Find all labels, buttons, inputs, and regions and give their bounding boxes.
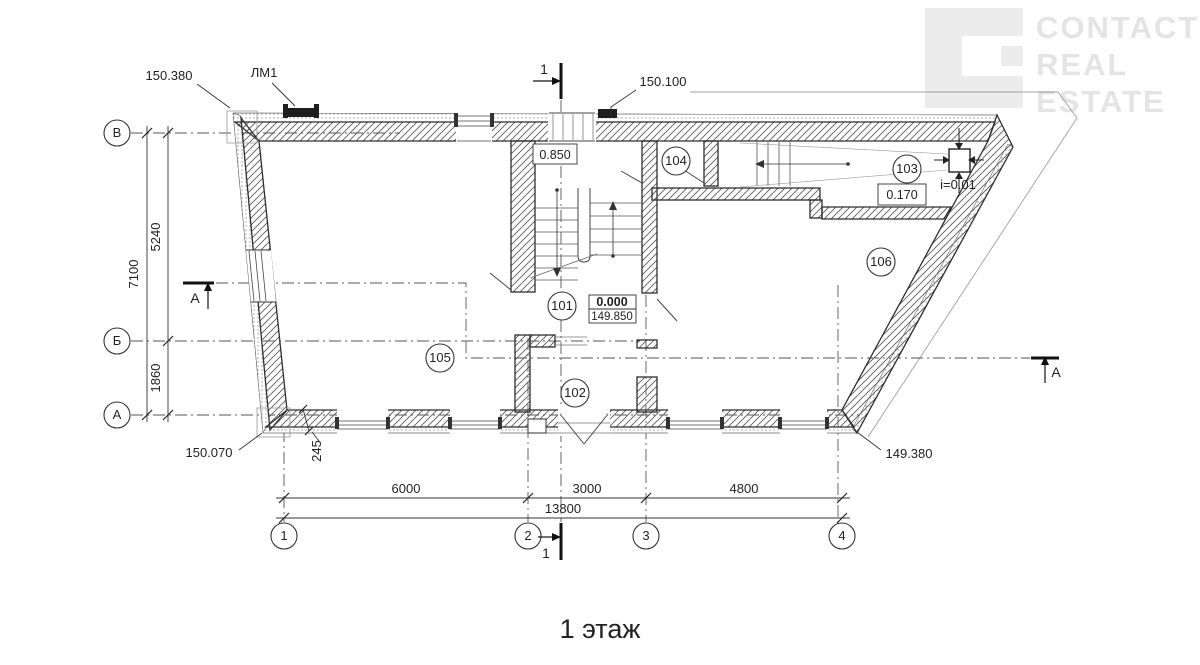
svg-text:105: 105	[429, 350, 451, 365]
dim-wall-thickness: 245	[309, 440, 324, 462]
svg-text:104: 104	[665, 153, 687, 168]
dim-b1: 6000	[392, 481, 421, 496]
stair-break-line	[530, 254, 597, 278]
room-bubble-101: 101	[548, 292, 576, 320]
wall-vestibule-left	[515, 335, 530, 412]
dim-v2: 1860	[148, 364, 163, 393]
watermark: CONTACT REAL ESTATE	[925, 8, 1199, 119]
floor-plan-svg: CONTACT REAL ESTATE	[0, 0, 1200, 665]
entry-jamb-box	[528, 419, 546, 433]
wall-stair-left	[511, 141, 535, 292]
watermark-line-1: CONTACT	[1036, 10, 1199, 45]
dim-total-bottom: 13800	[545, 501, 581, 516]
dim-v1: 5240	[148, 223, 163, 252]
axis-row-b: Б	[113, 333, 122, 348]
window-left	[246, 250, 276, 302]
drawing-sheet: CONTACT REAL ESTATE	[0, 0, 1200, 665]
wall-top-left	[235, 122, 457, 141]
corridor-arrow	[755, 160, 764, 168]
window-stairwell	[548, 112, 596, 142]
dim-b2: 3000	[573, 481, 602, 496]
roof-bracket	[598, 109, 617, 118]
axis-col-3: 3	[642, 528, 649, 543]
dim-b3: 4800	[730, 481, 759, 496]
ladder-bracket-lm1	[283, 104, 319, 118]
ladder-label: ЛМ1	[251, 65, 278, 80]
section-1-bottom: 1	[538, 523, 561, 561]
wall-vestibule-right-a	[637, 340, 657, 348]
elev-bottom-right: 149.380	[886, 446, 933, 461]
window-bottom-3	[666, 407, 724, 434]
wall-room104-right	[704, 141, 718, 186]
svg-text:1: 1	[540, 61, 548, 77]
svg-text:А: А	[190, 290, 200, 306]
axis-col-2: 2	[524, 528, 531, 543]
window-bottom-2	[448, 407, 502, 434]
wall-vestibule-right-b	[637, 377, 657, 412]
axis-col-1: 1	[280, 528, 287, 543]
room-bubble-102: 102	[561, 379, 589, 407]
wall-stair-right	[642, 141, 657, 293]
wall-corridor-south	[652, 188, 820, 200]
wall-corridor-south-east	[822, 207, 951, 219]
entrance-door	[558, 405, 610, 444]
section-1-top: 1	[533, 61, 561, 99]
axis-row-a: А	[113, 407, 122, 422]
svg-text:1: 1	[542, 545, 550, 561]
wall-corridor-step	[810, 200, 822, 218]
watermark-line-2: REAL	[1036, 47, 1128, 82]
level-boxes: 0.850 0.000 149.850 0.170	[533, 144, 926, 323]
stair-down-arrow	[553, 188, 561, 277]
section-a-left: А	[183, 282, 214, 309]
svg-text:103: 103	[896, 161, 918, 176]
stair-handrail	[578, 188, 590, 262]
window-bottom-4	[778, 407, 829, 434]
room-bubble-105: 105	[426, 344, 454, 372]
wall-right-slant	[842, 115, 1013, 433]
svg-text:А: А	[1051, 364, 1061, 380]
main-staircase	[530, 188, 642, 280]
slope-label: i=0.01	[940, 177, 976, 192]
wall-vestibule-stub	[530, 335, 555, 347]
elev-top-left: 150.380	[146, 68, 193, 83]
level-terrace: 0.170	[886, 188, 917, 202]
axis-col-4: 4	[838, 528, 845, 543]
window-bottom-1	[335, 407, 390, 434]
svg-text:106: 106	[870, 254, 892, 269]
svg-text:101: 101	[551, 298, 573, 313]
dim-total-vertical: 7100	[126, 260, 141, 289]
section-a-right: А	[1031, 356, 1061, 383]
room-bubbles: 101 102 103 104 105 106	[426, 147, 921, 407]
elev-bottom-left: 150.070	[186, 445, 233, 460]
level-landing: 0.850	[539, 148, 570, 162]
room-bubble-106: 106	[867, 248, 895, 276]
svg-text:102: 102	[564, 385, 586, 400]
level-absolute: 149.850	[591, 311, 633, 323]
window-top	[454, 111, 494, 143]
elev-top-center: 150.100	[640, 74, 687, 89]
room-bubble-104: 104	[662, 147, 690, 175]
watermark-line-3: ESTATE	[1036, 84, 1166, 119]
level-zero: 0.000	[596, 295, 627, 309]
drawing-title: 1 этаж	[560, 614, 641, 644]
room-bubble-103: 103	[893, 155, 921, 183]
axis-row-v: В	[113, 125, 122, 140]
